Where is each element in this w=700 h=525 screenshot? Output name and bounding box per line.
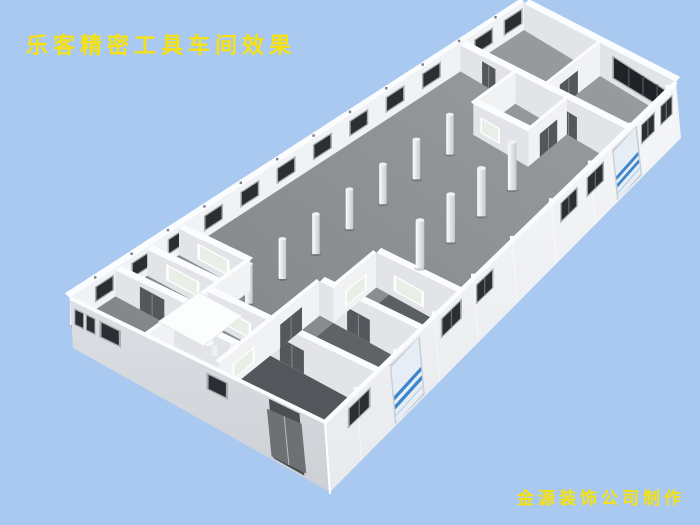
column: [413, 139, 421, 179]
column: [346, 189, 354, 229]
pilaster-cap: [354, 387, 359, 391]
column: [279, 239, 287, 279]
column: [416, 220, 425, 268]
pilaster-cap: [471, 274, 476, 278]
wall-joint-tick: [458, 40, 460, 43]
window-mullion: [568, 196, 569, 213]
column-cap: [279, 237, 286, 240]
wall-joint-tick: [203, 205, 205, 208]
pilaster-cap: [432, 311, 437, 315]
pilaster-cap: [393, 349, 398, 353]
window-mullion: [595, 171, 596, 188]
window-mullion: [451, 310, 452, 327]
wall-joint-tick: [385, 87, 387, 90]
wall-joint-tick: [312, 134, 314, 137]
column-cap: [508, 140, 517, 144]
window-mullion: [666, 102, 667, 119]
column: [379, 164, 387, 204]
column-cap: [312, 212, 319, 215]
door-split: [488, 66, 489, 88]
window-mullion: [642, 76, 644, 96]
workshop-3d-render: [0, 0, 700, 525]
column-cap: [477, 166, 486, 170]
window-mullion: [484, 278, 485, 295]
column-cap: [446, 192, 455, 196]
wall-joint-tick: [94, 276, 96, 279]
column: [508, 142, 517, 190]
bath-fixture: [211, 346, 217, 356]
pilaster-cap: [666, 85, 671, 89]
window-mullion: [628, 67, 630, 87]
door-split: [291, 317, 292, 339]
window-mullion: [647, 120, 648, 137]
door-split: [568, 113, 569, 135]
workshop-render-page: 乐客精密工具车间效果 金源装饰公司制作: [0, 0, 700, 525]
wall-joint-tick: [276, 158, 278, 161]
door-split: [358, 315, 359, 337]
column-cap: [416, 218, 425, 222]
column: [447, 194, 456, 242]
door-split: [291, 345, 292, 367]
column-cap: [379, 162, 386, 165]
wall-joint-tick: [167, 229, 169, 232]
column-cap: [346, 187, 353, 190]
column-cap: [413, 138, 420, 141]
window-mullion: [359, 399, 360, 416]
pilaster-cap: [549, 198, 554, 202]
pilaster-cap: [627, 123, 632, 127]
wall-joint-tick: [240, 182, 242, 185]
pilaster-cap: [588, 161, 593, 165]
pilaster-cap: [510, 236, 515, 240]
column-cap: [446, 113, 453, 116]
door-split: [548, 128, 549, 150]
wall-joint-tick: [494, 16, 496, 19]
door-split: [152, 294, 153, 316]
wall-joint-tick: [349, 111, 351, 114]
column: [477, 168, 486, 216]
column: [312, 214, 320, 254]
wall-joint-tick: [422, 63, 424, 66]
column: [446, 114, 454, 154]
wall-joint-tick: [130, 253, 132, 256]
